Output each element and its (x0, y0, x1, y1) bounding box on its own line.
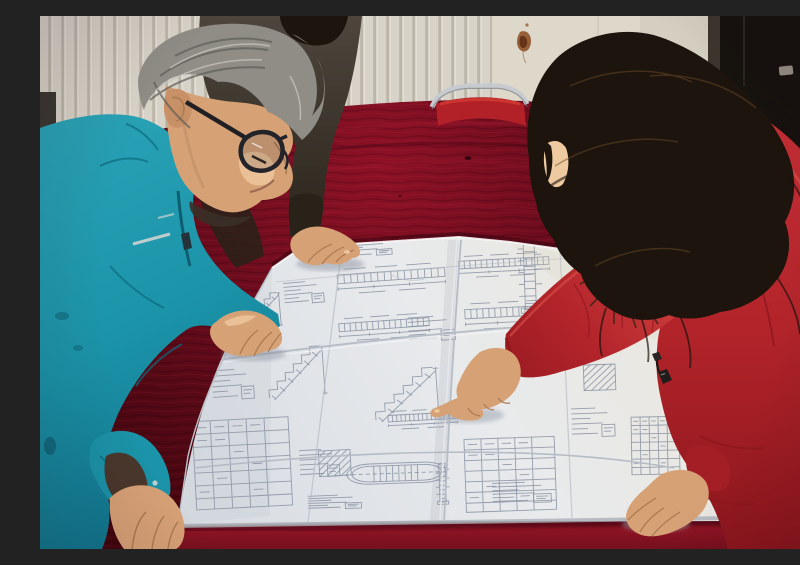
photo-blueprint-review: Two workers study a large folded enginee… (40, 16, 800, 549)
vignette (40, 16, 800, 549)
scene-canvas (40, 16, 800, 549)
